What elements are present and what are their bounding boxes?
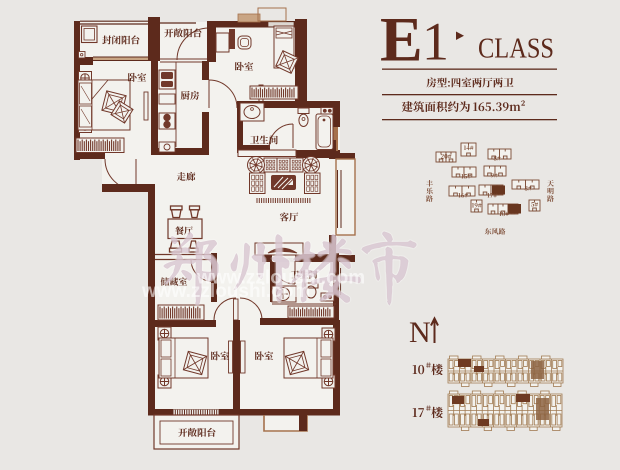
svg-text:1: 1 <box>422 12 449 72</box>
svg-text:www.zzloushi.com: www.zzloushi.com <box>141 281 310 302</box>
svg-text:E: E <box>380 4 423 75</box>
svg-text:N: N <box>409 316 431 349</box>
svg-text:CLASS: CLASS <box>478 34 554 65</box>
